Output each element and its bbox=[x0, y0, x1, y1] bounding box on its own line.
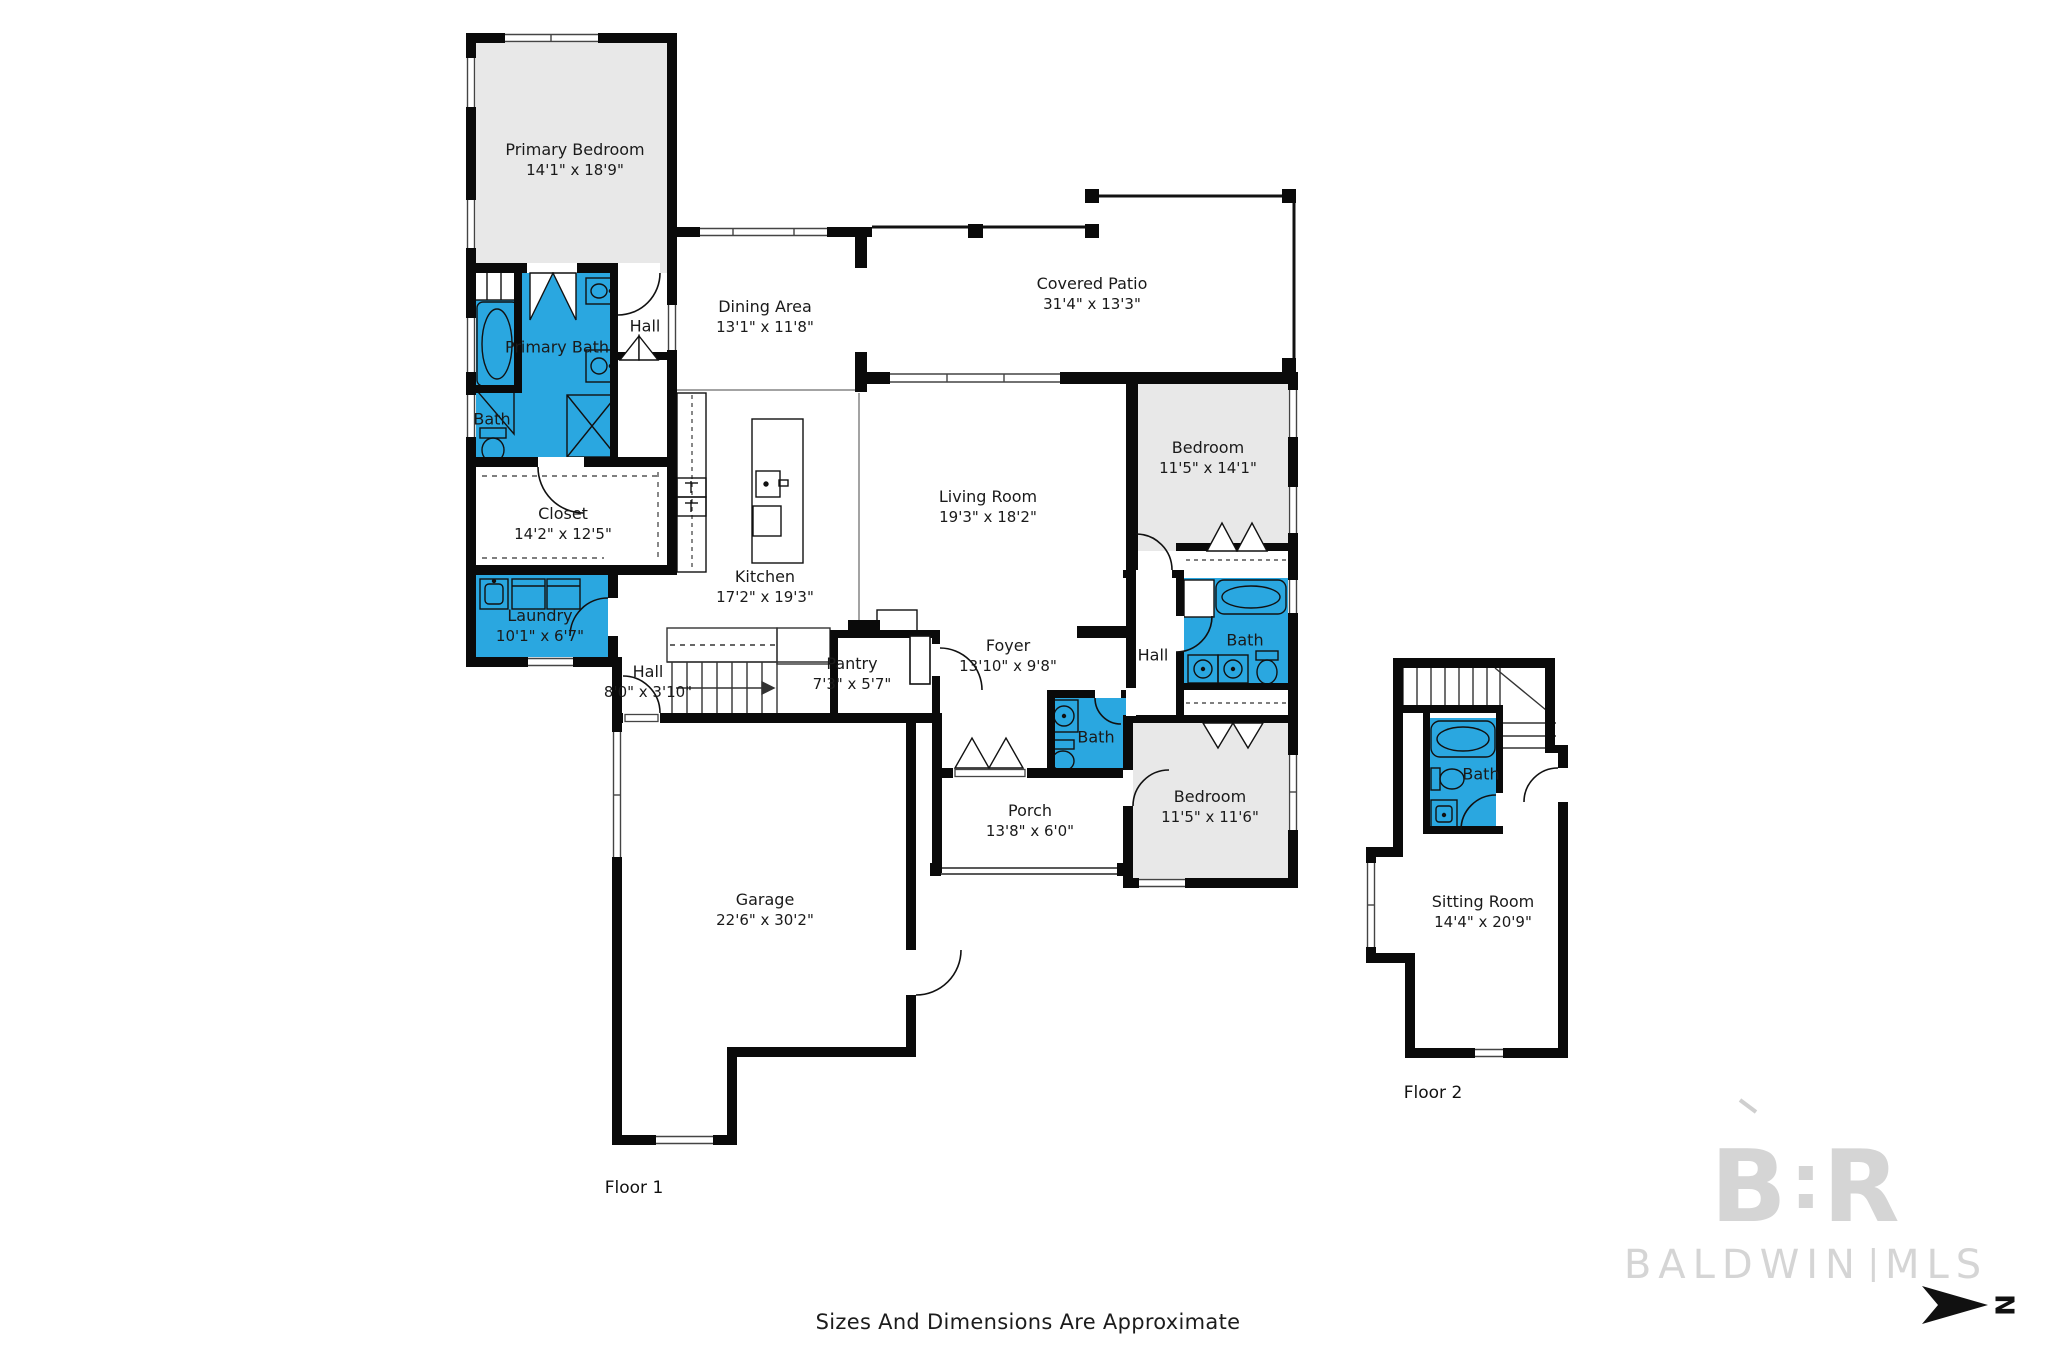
watermark-tick bbox=[1740, 1100, 1756, 1112]
logo-letter-b: B bbox=[1710, 1142, 1788, 1232]
floor2-label: Floor 2 bbox=[1404, 1083, 1463, 1103]
floorplan-page: N Primary Bedroom14'1" x 18'9" Hall Prim… bbox=[0, 0, 2048, 1365]
logo-letter-r: R bbox=[1823, 1142, 1902, 1232]
north-arrow-icon: N bbox=[1922, 1286, 2019, 1324]
baldwin-logo-icon: B R bbox=[1624, 1142, 1988, 1232]
baldwin-mls-text: BALDWIN MLS bbox=[1624, 1242, 1988, 1288]
footer-disclaimer: Sizes And Dimensions Are Approximate bbox=[816, 1310, 1241, 1334]
patio-outline bbox=[872, 196, 1294, 372]
logo-dots-icon bbox=[1799, 1166, 1813, 1208]
floor1-label: Floor 1 bbox=[605, 1178, 664, 1198]
watermark-baldwin: BALDWIN bbox=[1624, 1242, 1862, 1288]
watermark-divider bbox=[1872, 1248, 1875, 1282]
stairs-floor1 bbox=[667, 628, 830, 713]
watermark-mls: MLS bbox=[1885, 1242, 1988, 1288]
baldwin-mls-watermark: B R BALDWIN MLS bbox=[1624, 1142, 1988, 1288]
north-label: N bbox=[1989, 1294, 2019, 1316]
porch-edge bbox=[930, 863, 1128, 876]
open-boundaries bbox=[677, 390, 859, 620]
patio-posts bbox=[968, 189, 1296, 372]
